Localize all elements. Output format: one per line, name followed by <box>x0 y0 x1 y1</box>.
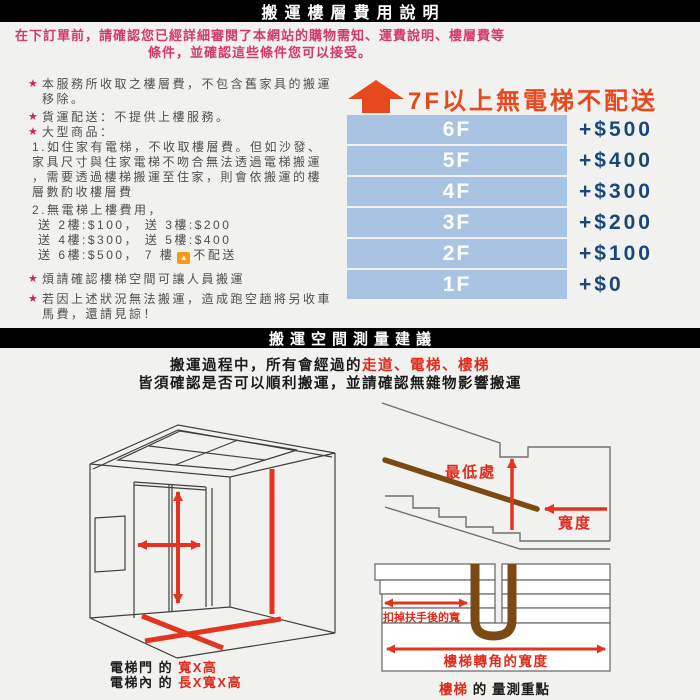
caption-text: 電梯門 的 <box>110 660 173 675</box>
fee-line: 送 6樓:$500， 7 樓▲不配送 <box>32 248 346 264</box>
floor-label: 4F <box>443 180 472 204</box>
star-bullet-icon: ★ <box>28 77 42 107</box>
elevator-caption: 電梯門 的 寬X高 電梯內 的 長X寬X高 <box>110 660 242 690</box>
caption-text: 的 量測重點 <box>473 682 550 697</box>
detail-line: 層數酌收樓層費 <box>32 185 346 200</box>
fee-line-text: 不配送 <box>193 248 237 262</box>
list-item: ★ 本服務所收取之樓層費，不包含舊家具的搬運移除。 <box>28 77 346 107</box>
caption-line: 電梯門 的 寬X高 <box>110 660 242 675</box>
order-confirmation-notice: 在下訂單前，請確認您已經詳細審閱了本網站的購物需知、運費說明、樓層費等 條件，並… <box>0 27 520 61</box>
floor-row: 6F <box>347 115 567 144</box>
floor-row: 5F <box>347 146 567 175</box>
floor-label: 1F <box>443 273 472 297</box>
floor-fee: +$0 <box>579 270 699 299</box>
notice-line1: 在下訂單前，請確認您已經詳細審閱了本網站的購物需知、運費說明、樓層費等 <box>0 27 520 44</box>
handrail-width-label: 扣掉扶手後的寬 <box>383 610 460 624</box>
floor-row: 2F <box>347 239 567 268</box>
bullet-text: 大型商品： <box>42 125 346 140</box>
elevator-panel <box>95 516 125 572</box>
width-label: 寬度 <box>558 514 592 532</box>
detail-line: 2.無電梯上樓費用， <box>32 203 346 218</box>
star-bullet-icon: ★ <box>28 110 42 125</box>
star-bullet-icon: ★ <box>28 272 42 287</box>
caption-text-red: 寬X高 <box>178 660 217 675</box>
section2-header-bar: 搬運空間測量建議 <box>0 328 700 348</box>
floor-row: 4F <box>347 177 567 206</box>
page: 搬運樓層費用說明 在下訂單前，請確認您已經詳細審閱了本網站的購物需知、運費說明、… <box>0 0 700 700</box>
section1-title: 搬運樓層費用說明 <box>261 0 445 23</box>
star-bullet-icon: ★ <box>28 292 42 322</box>
floor-fee: +$400 <box>579 146 699 175</box>
floor-label: 5F <box>443 149 472 173</box>
measurement-arrows <box>138 469 281 648</box>
fee-terms-list: ★ 本服務所收取之樓層費，不包含舊家具的搬運移除。 ★ 貨運配送：不提供上樓服務… <box>28 77 346 322</box>
caption-text-red: 樓梯 <box>439 682 468 697</box>
measurement-notice: 搬運過程中，所有會經過的走道、電梯、樓梯 皆須確認是否可以順利搬運，並請確認無雜… <box>0 357 660 393</box>
list-item: ★ 若因上述狀況無法搬運，造成跑空趟將另收車馬費，還請見諒！ <box>28 292 346 322</box>
list-item: ★ 煩請確認樓梯空間可讓人員搬運 <box>28 272 346 287</box>
floor-fee: +$200 <box>579 208 699 237</box>
notice-line1: 搬運過程中，所有會經過的走道、電梯、樓梯 <box>0 357 660 375</box>
stair-corner-diagram: 扣掉扶手後的寬 樓梯轉角的寬度 <box>372 558 617 676</box>
floor-label: 3F <box>443 211 472 235</box>
floor-row: 3F <box>347 208 567 237</box>
bullet-text: 貨運配送：不提供上樓服務。 <box>42 110 346 125</box>
big-up-arrow-icon <box>348 80 404 113</box>
large-item-detail: 1.如住家有電梯，不收取樓層費。但如沙發、 家具尺寸與住家電梯不吻合無法透過電梯… <box>32 140 346 264</box>
floor-label: 6F <box>443 118 472 142</box>
elevator-door <box>134 482 212 618</box>
notice-text: 搬運過程中，所有會經過的 <box>170 358 362 374</box>
notice-text-red: 走道、電梯、樓梯 <box>362 358 490 374</box>
list-item: ★ 大型商品： <box>28 125 346 140</box>
fee-line-text: 送 6樓:$500， 7 樓 <box>38 248 174 262</box>
bullet-text: 本服務所收取之樓層費，不包含舊家具的搬運移除。 <box>42 77 346 107</box>
no-elevator-warning: 7F以上無電梯不配送 <box>408 81 658 116</box>
floor-fee: +$100 <box>579 239 699 268</box>
caption-line: 電梯內 的 長X寬X高 <box>110 675 242 690</box>
star-bullet-icon: ★ <box>28 125 42 140</box>
caption-text: 電梯內 的 <box>110 675 173 690</box>
elevator-outline <box>90 425 335 658</box>
elevator-diagram <box>80 418 350 668</box>
caption-text-red: 長X寬X高 <box>178 675 242 690</box>
section2-title: 搬運空間測量建議 <box>269 328 437 349</box>
lowest-point-label: 最低處 <box>445 463 496 481</box>
stairs-diagram: 最低處 寬度 <box>372 398 617 558</box>
notice-line2: 皆須確認是否可以順利搬運，並請確認無雜物影響搬運 <box>0 375 660 393</box>
stairs-caption: 樓梯 的 量測重點 <box>372 678 617 698</box>
detail-line: 家具尺寸與住家電梯不吻合無法透過電梯搬運 <box>32 155 346 170</box>
floor-width-line <box>145 619 281 641</box>
list-item: ★ 貨運配送：不提供上樓服務。 <box>28 110 346 125</box>
floor-fee: +$500 <box>579 115 699 144</box>
section1-header-bar: 搬運樓層費用說明 <box>0 0 700 22</box>
up-arrow-icon: ▲ <box>177 252 190 264</box>
bullet-text: 若因上述狀況無法搬運，造成跑空趟將另收車馬費，還請見諒！ <box>42 292 346 322</box>
bullet-text: 煩請確認樓梯空間可讓人員搬運 <box>42 272 346 287</box>
corner-width-label: 樓梯轉角的寬度 <box>444 653 549 669</box>
floor-row: 1F <box>347 270 567 299</box>
detail-line: ，需要透過樓梯搬運至住家，則會依搬運的樓 <box>32 170 346 185</box>
fee-line: 送 4樓:$300， 送 5樓:$400 <box>32 233 346 248</box>
fee-line: 送 2樓:$100， 送 3樓:$200 <box>32 218 346 233</box>
floor-fee: +$300 <box>579 177 699 206</box>
detail-line: 1.如住家有電梯，不收取樓層費。但如沙發、 <box>32 140 346 155</box>
floor-label: 2F <box>443 242 472 266</box>
notice-line2: 條件，並確認這些條件您可以接受。 <box>0 44 520 61</box>
